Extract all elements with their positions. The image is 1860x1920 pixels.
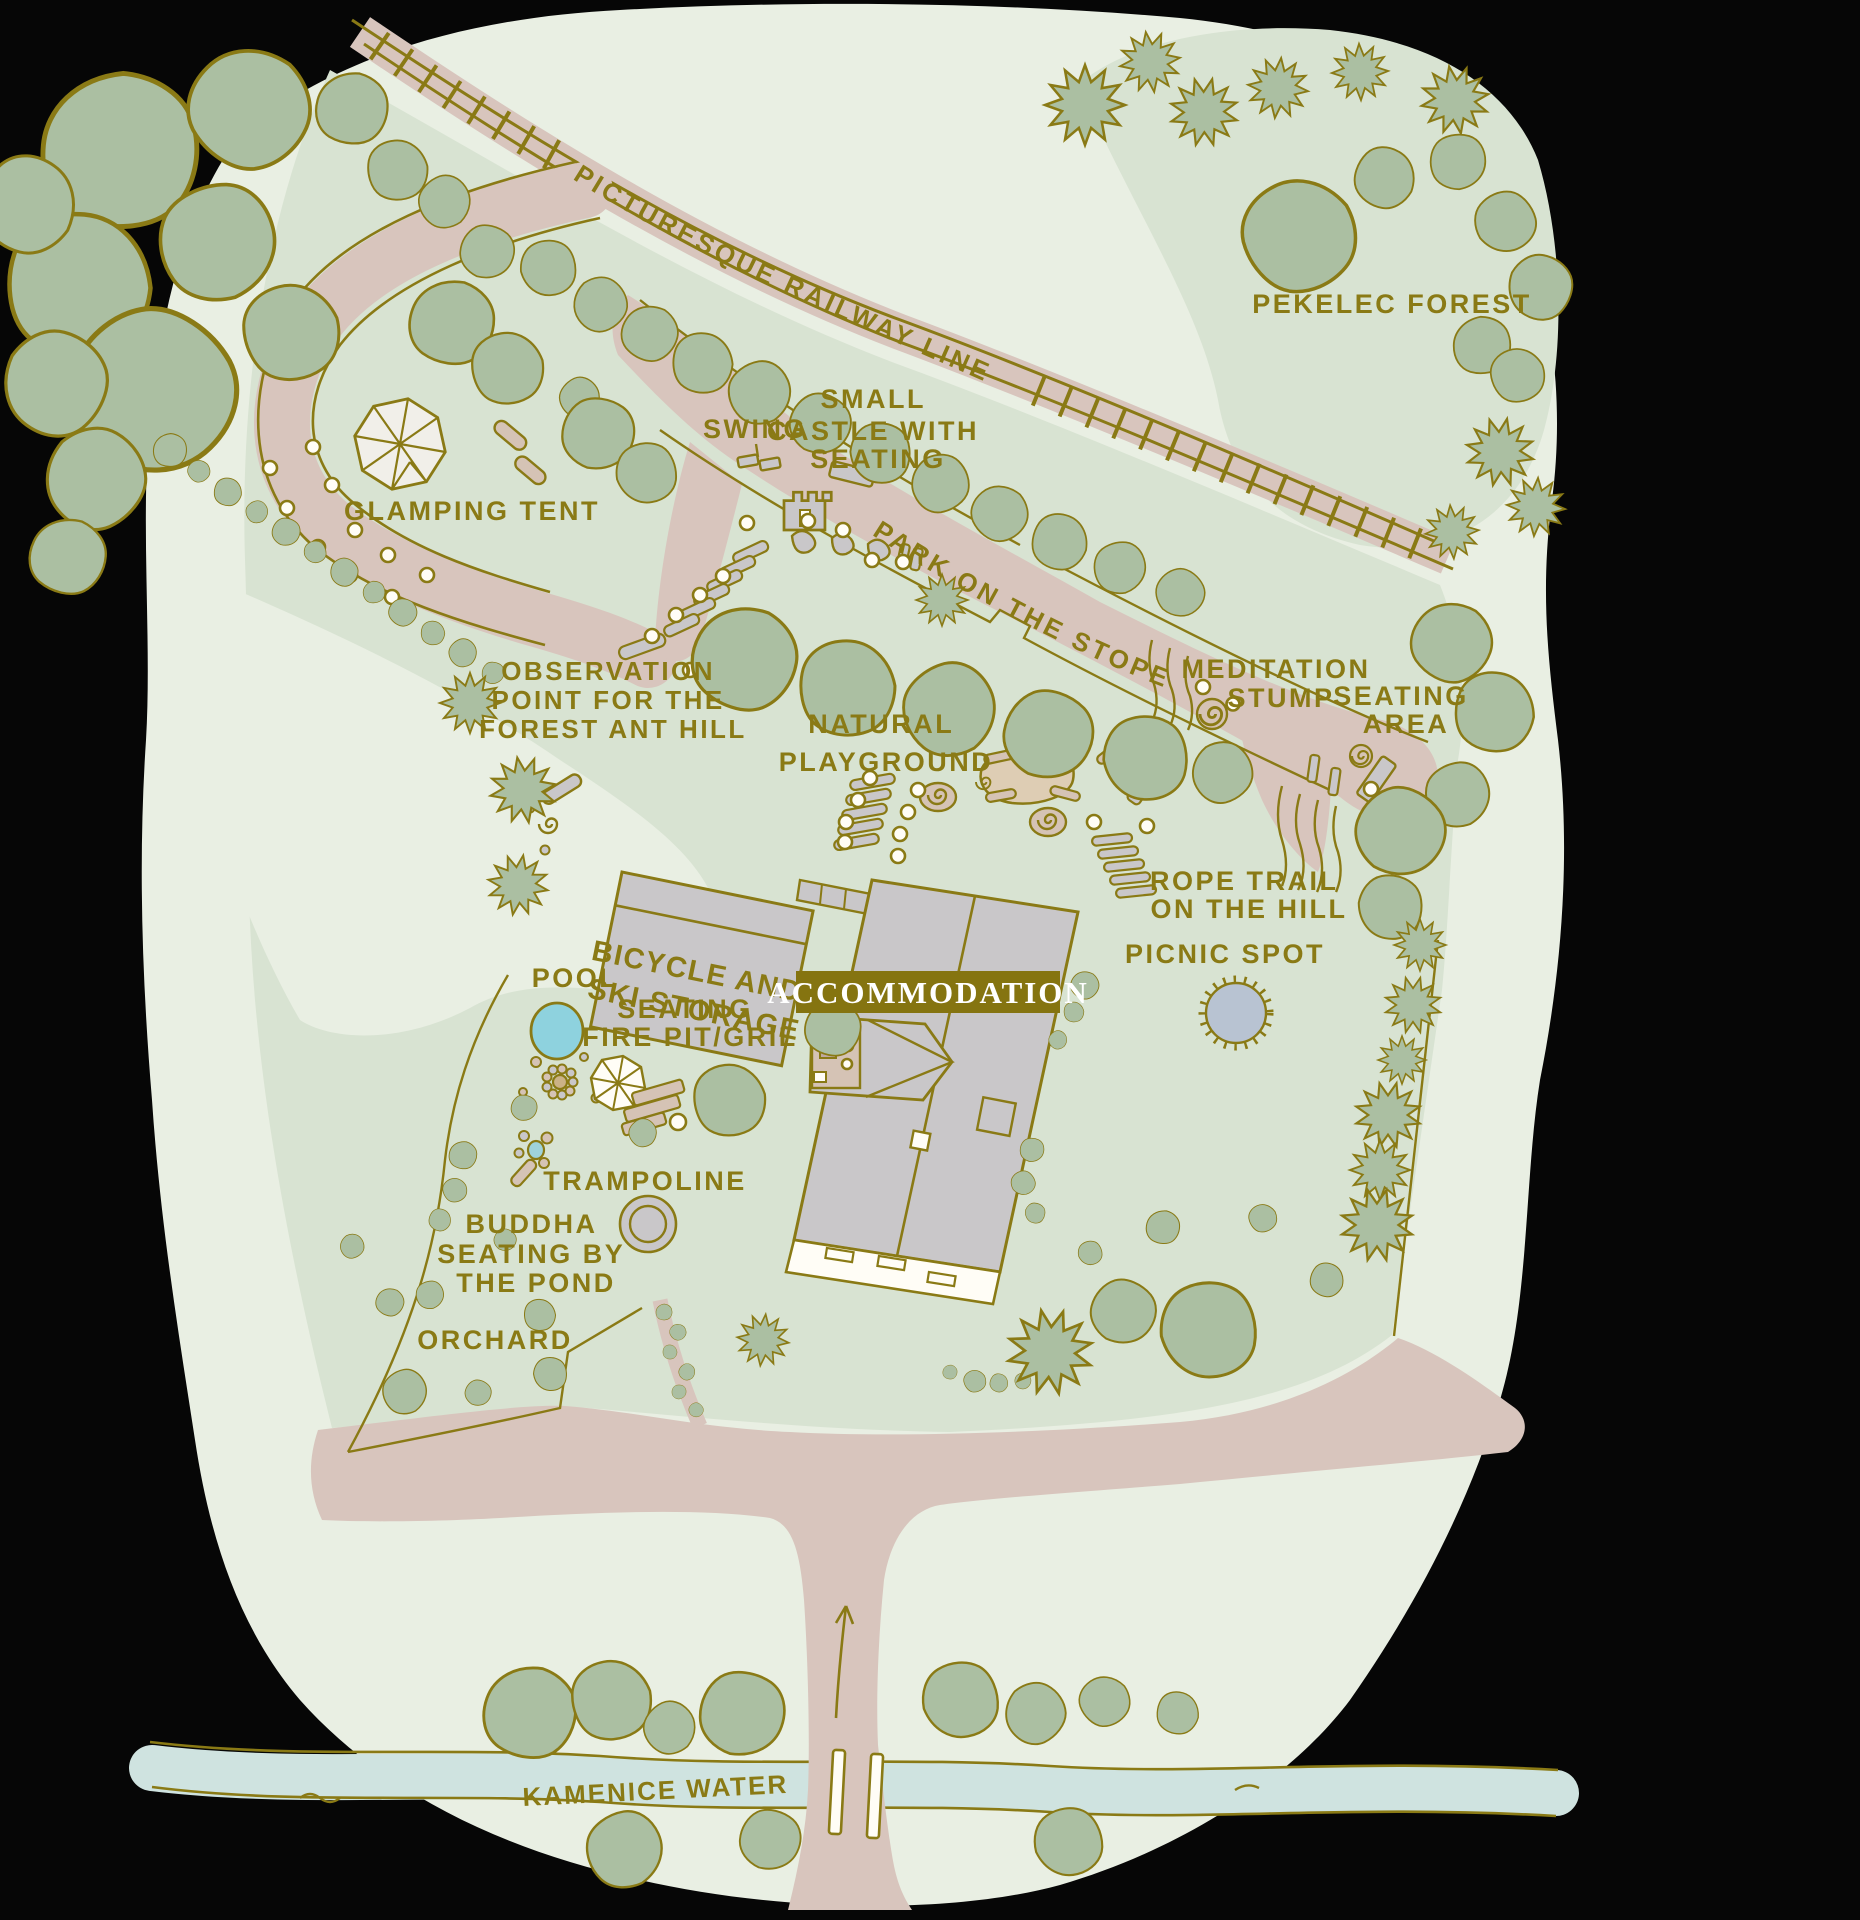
light-icon (716, 569, 730, 583)
label-rope-trail: ROPE TRAIL ON THE HILL (1150, 866, 1348, 924)
light-icon (801, 514, 815, 528)
light-icon (645, 629, 659, 643)
light-icon (280, 501, 294, 515)
label-pekelec-forest: PEKELEC FOREST (1252, 289, 1532, 319)
tree-icon (663, 1345, 677, 1359)
light-icon (306, 440, 320, 454)
light-icon (891, 849, 905, 863)
label-observation-point: OBSERVATION POINT FOR THE FOREST ANT HIL… (479, 656, 747, 744)
light-icon (901, 805, 915, 819)
light-icon (839, 815, 853, 829)
light-icon (263, 461, 277, 475)
light-icon (1087, 815, 1101, 829)
light-icon (669, 608, 683, 622)
light-icon (838, 835, 852, 849)
light-icon (893, 827, 907, 841)
light-icon (836, 523, 850, 537)
light-icon (865, 553, 879, 567)
meditation-stump-icon (1197, 699, 1227, 729)
tree-icon (421, 621, 444, 645)
label-orchard: ORCHARD (417, 1325, 573, 1355)
site-map: BICYCLE AND SKI STORAGE (0, 0, 1860, 1920)
pool-icon (531, 1003, 583, 1059)
label-accommodation: ACCOMMODATION (767, 975, 1089, 1010)
label-trampoline: TRAMPOLINE (543, 1166, 747, 1196)
map-canvas: BICYCLE AND SKI STORAGE (0, 0, 1860, 1920)
light-icon (670, 1114, 686, 1130)
tree-icon (673, 333, 732, 392)
tree-icon (672, 1385, 686, 1399)
tree-icon (656, 1304, 672, 1320)
light-icon (1140, 819, 1154, 833)
light-icon (740, 516, 754, 530)
label-buddha-seating: BUDDHA SEATING BY THE POND (437, 1209, 635, 1298)
light-icon (381, 548, 395, 562)
label-glamping-tent: GLAMPING TENT (344, 496, 600, 526)
accommodation-badge: ACCOMMODATION (767, 971, 1089, 1013)
tree-icon (153, 434, 186, 467)
light-icon (911, 783, 925, 797)
light-icon (420, 568, 434, 582)
light-icon (325, 478, 339, 492)
label-pool: POOL (532, 963, 619, 993)
light-icon (851, 793, 865, 807)
label-picnic-spot: PICNIC SPOT (1125, 939, 1325, 969)
glamping-tent-icon (355, 399, 446, 490)
light-icon (693, 588, 707, 602)
